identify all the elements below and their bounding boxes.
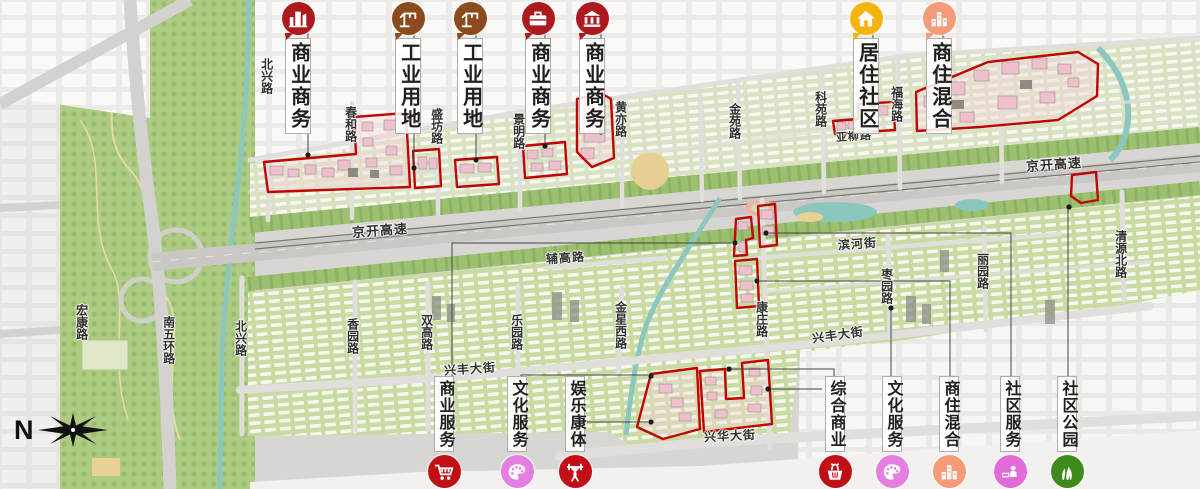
road-label-shengfang: 盛坊路 bbox=[430, 108, 443, 144]
road-label-south-fifth-ring: 南五环路 bbox=[162, 316, 175, 364]
legend-pin-industrial-2: 工业用地 bbox=[452, 2, 488, 134]
compass-rose-icon bbox=[38, 408, 108, 452]
legend-pin-community-park: 社区公园 bbox=[1049, 376, 1085, 488]
shopping-cart-icon bbox=[428, 455, 461, 488]
legend-pin-label: 工业用地 bbox=[457, 38, 482, 134]
legend-pin-commercial-service: 商业服务 bbox=[426, 376, 462, 488]
road-label-keyuan: 科苑路 bbox=[814, 91, 827, 127]
service-desk-icon bbox=[994, 455, 1027, 488]
weightlifter-icon bbox=[559, 455, 592, 488]
legend-pin-label: 娱乐康体 bbox=[565, 376, 586, 452]
city-buildings-icon bbox=[282, 2, 315, 35]
legend-pin-residential-community: 居住社区 bbox=[848, 2, 884, 134]
legend-pin-label: 商业商务 bbox=[579, 38, 604, 134]
briefcase-icon bbox=[522, 2, 555, 35]
legend-pin-label: 商住混合 bbox=[939, 376, 960, 452]
road-label-jinxing-west: 金星西路 bbox=[614, 301, 627, 349]
grass-icon bbox=[1051, 455, 1084, 488]
legend-pin-label: 商住混合 bbox=[926, 38, 951, 134]
road-label-shuanggao: 双高路 bbox=[420, 314, 433, 350]
legend-pin-label: 居住社区 bbox=[853, 38, 878, 134]
legend-pin-mixed-use-bottom: 商住混合 bbox=[931, 376, 967, 488]
road-label-xinghua: 兴华大街 bbox=[704, 429, 757, 444]
road-label-fuhai: 福海路 bbox=[890, 86, 903, 122]
legend-pin-label: 社区服务 bbox=[1000, 376, 1021, 452]
road-label-kangzhuang: 康庄路 bbox=[755, 301, 768, 337]
road-label-beixing-north: 北兴路 bbox=[260, 58, 273, 94]
road-label-liyuan: 丽园路 bbox=[976, 253, 989, 289]
bank-icon bbox=[576, 2, 609, 35]
legend-pin-label: 商业商务 bbox=[525, 38, 550, 134]
road-label-fugao: 辅高路 bbox=[546, 251, 586, 266]
legend-pin-label: 商业服务 bbox=[434, 376, 455, 452]
legend-pin-label: 综合商业 bbox=[825, 376, 846, 452]
compass: N bbox=[14, 408, 108, 452]
compass-north-label: N bbox=[14, 415, 34, 446]
legend-pin-label: 商业商务 bbox=[285, 38, 310, 134]
legend-pin-commercial-business-2: 商业商务 bbox=[520, 2, 556, 134]
legend-pin-culture-service-1: 文化服务 bbox=[499, 376, 535, 488]
road-label-zaoyuan: 枣园路 bbox=[880, 268, 893, 304]
legend-pin-integrated-commerce: 综合商业 bbox=[817, 376, 853, 488]
legend-pin-culture-service-2: 文化服务 bbox=[874, 376, 910, 488]
legend-pin-mixed-use-top: 商住混合 bbox=[921, 2, 957, 134]
legend-pin-recreation: 娱乐康体 bbox=[557, 376, 593, 488]
legend-pin-label: 文化服务 bbox=[507, 376, 528, 452]
legend-pin-community-service: 社区服务 bbox=[992, 376, 1028, 488]
palette-icon bbox=[501, 455, 534, 488]
house-icon bbox=[850, 2, 883, 35]
planning-map: 北兴路 春和路 盛坊路 景明路 黄亦路 金苑路 科苑路 福海路 亚柳路 京开高速… bbox=[0, 0, 1200, 489]
road-label-chunhe: 春和路 bbox=[344, 106, 357, 142]
legend-pin-commercial-business-3: 商业商务 bbox=[574, 2, 610, 134]
towers-icon bbox=[933, 455, 966, 488]
legend-pin-industrial-1: 工业用地 bbox=[390, 2, 426, 134]
legend-pin-commercial-business-1: 商业商务 bbox=[280, 2, 316, 134]
road-label-jinyuan: 金苑路 bbox=[728, 103, 741, 139]
road-label-huangyi: 黄亦路 bbox=[614, 101, 627, 137]
road-label-beixing-south: 北兴路 bbox=[234, 320, 247, 356]
palette-icon bbox=[876, 455, 909, 488]
crane-icon bbox=[392, 2, 425, 35]
basket-icon bbox=[819, 455, 852, 488]
road-label-qingyuan-north: 清源北路 bbox=[1114, 230, 1127, 278]
legend-pin-label: 工业用地 bbox=[395, 38, 420, 134]
road-label-hongkang: 宏康路 bbox=[75, 304, 88, 340]
road-label-binhe: 滨河街 bbox=[838, 237, 878, 252]
road-label-leyuan: 乐园路 bbox=[510, 314, 523, 350]
towers-icon bbox=[923, 2, 956, 35]
road-label-xiangyuan: 香园路 bbox=[346, 318, 359, 354]
legend-pin-label: 社区公园 bbox=[1057, 376, 1078, 452]
crane-icon bbox=[454, 2, 487, 35]
legend-pin-label: 文化服务 bbox=[882, 376, 903, 452]
